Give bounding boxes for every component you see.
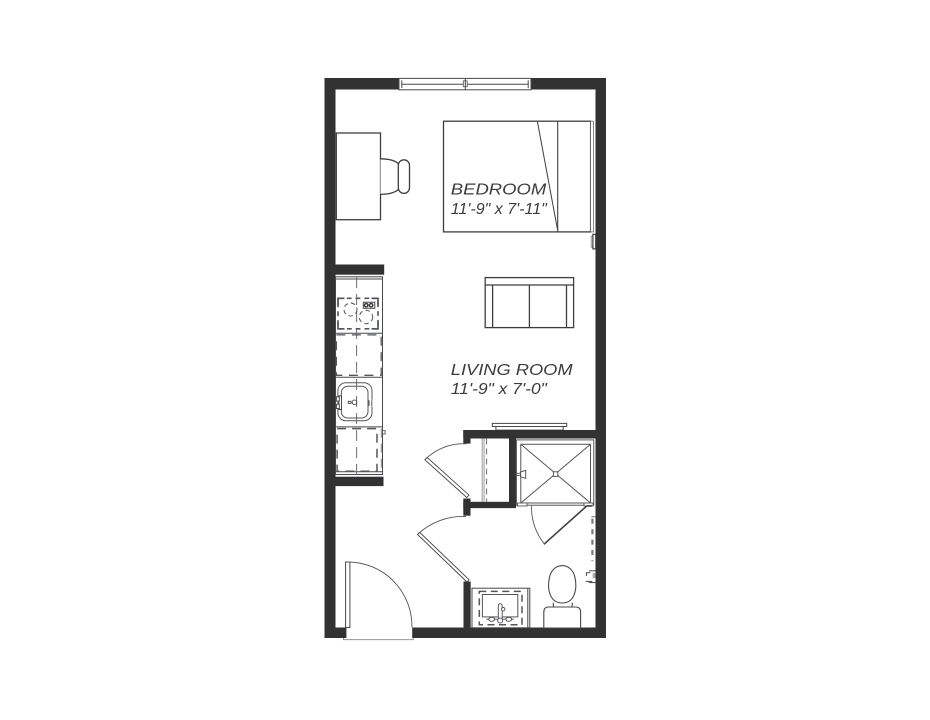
svg-text:LIVING ROOM: LIVING ROOM [451,362,574,379]
svg-text:BEDROOM: BEDROOM [451,182,547,199]
svg-text:11'-9" x 7'-0": 11'-9" x 7'-0" [451,381,548,398]
svg-text:11'-9" x 7'-11": 11'-9" x 7'-11" [451,201,548,218]
